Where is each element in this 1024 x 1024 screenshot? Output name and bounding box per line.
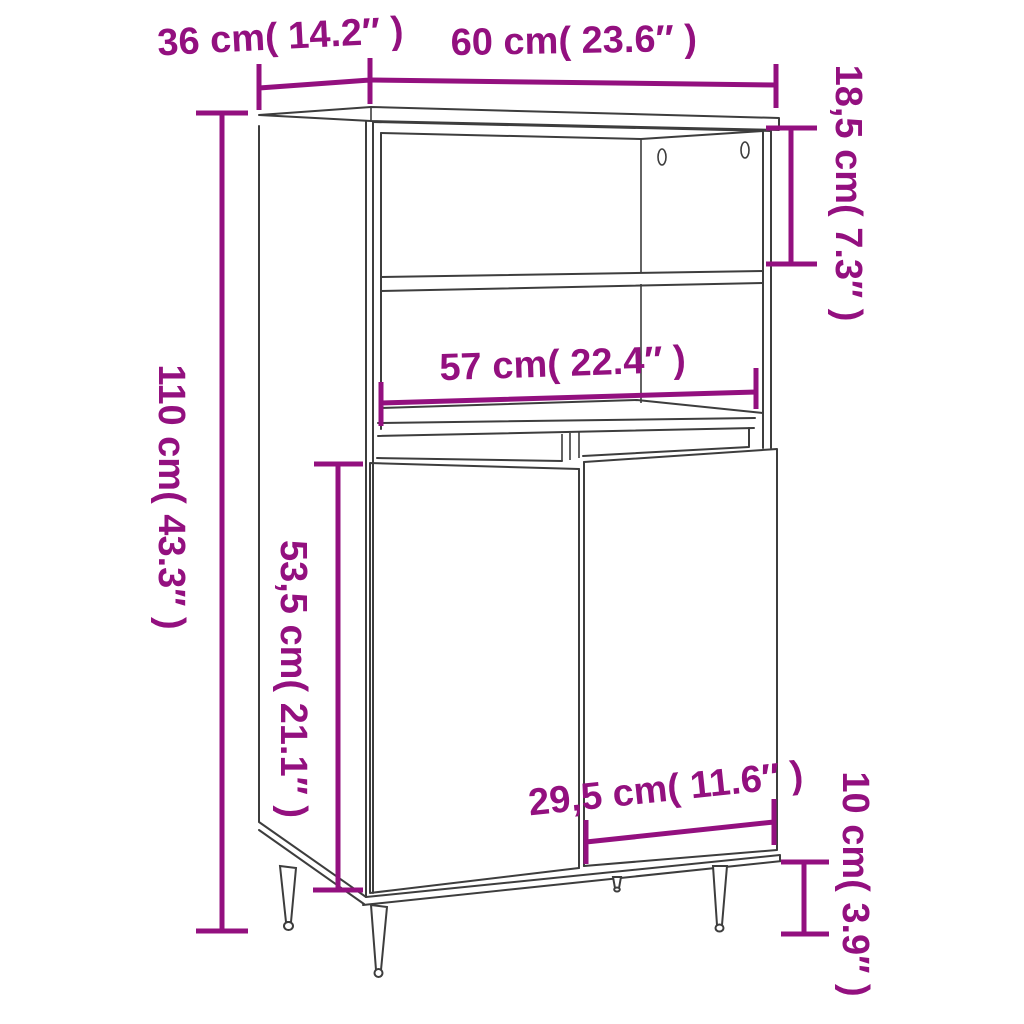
leg-front-right bbox=[713, 866, 727, 925]
diagram-canvas: 36 cm( 14.2″ ) 60 cm( 23.6″ ) 18,5 cm( 7… bbox=[0, 0, 1024, 1024]
dim-width-label: 60 cm( 23.6″ ) bbox=[450, 18, 697, 64]
cabinet-top-panel bbox=[259, 107, 779, 130]
dim-door-width-label: 29,5 cm( 11.6″ ) bbox=[526, 754, 805, 825]
back-panel-hole-left bbox=[658, 149, 666, 165]
dim-depth-line bbox=[259, 58, 370, 110]
leg-front-left-foot bbox=[375, 969, 383, 977]
diagram-page: { "diagram": { "title": "highboard-dimen… bbox=[0, 0, 1024, 1024]
compartment-floor-front-edge bbox=[378, 418, 755, 436]
dim-depth-label: 36 cm( 14.2″ ) bbox=[156, 10, 404, 65]
furniture-dimension-diagram: 36 cm( 14.2″ ) 60 cm( 23.6″ ) 18,5 cm( 7… bbox=[0, 0, 1024, 1024]
leg-back-left-foot bbox=[284, 922, 293, 930]
dim-door-height-bracket bbox=[313, 464, 363, 890]
cabinet-rail-seams bbox=[562, 432, 579, 461]
dim-door-width: 29,5 cm( 11.6″ ) bbox=[526, 754, 805, 864]
dim-door-height: 53,5 cm( 21.1″ ) bbox=[272, 464, 363, 890]
dim-door-height-label: 53,5 cm( 21.1″ ) bbox=[272, 540, 314, 818]
dim-leg-height-bracket bbox=[781, 862, 829, 934]
dim-top-section-height: 18,5 cm( 7.3″ ) bbox=[766, 65, 869, 322]
dim-inner-width: 57 cm( 22.4″ ) bbox=[381, 339, 756, 426]
cabinet-back-panel-top-edge bbox=[381, 131, 763, 139]
leg-back-middle bbox=[613, 877, 621, 888]
dim-total-height-bracket bbox=[196, 113, 248, 931]
leg-back-left bbox=[280, 866, 296, 922]
dim-width: 60 cm( 23.6″ ) bbox=[370, 18, 776, 108]
dim-top-section-height-bracket bbox=[766, 128, 817, 264]
dim-leg-height-label: 10 cm( 3.9″ ) bbox=[834, 771, 876, 996]
dim-depth: 36 cm( 14.2″ ) bbox=[156, 10, 404, 110]
dim-total-height: 110 cm( 43.3″ ) bbox=[150, 113, 248, 931]
dim-width-line bbox=[370, 64, 776, 108]
left-door bbox=[370, 463, 579, 893]
back-panel-hole-right bbox=[741, 142, 749, 158]
leg-front-right-foot bbox=[716, 925, 724, 932]
dim-inner-width-label: 57 cm( 22.4″ ) bbox=[439, 339, 687, 390]
cabinet-shelf bbox=[381, 271, 763, 291]
dim-total-height-label: 110 cm( 43.3″ ) bbox=[150, 364, 192, 629]
dim-top-section-height-label: 18,5 cm( 7.3″ ) bbox=[827, 65, 869, 322]
cabinet-face-top-edge bbox=[373, 122, 771, 131]
leg-front-left bbox=[371, 905, 387, 970]
leg-back-middle-foot bbox=[614, 888, 620, 892]
dim-leg-height: 10 cm( 3.9″ ) bbox=[781, 771, 876, 996]
cabinet-right-frame bbox=[763, 131, 771, 448]
